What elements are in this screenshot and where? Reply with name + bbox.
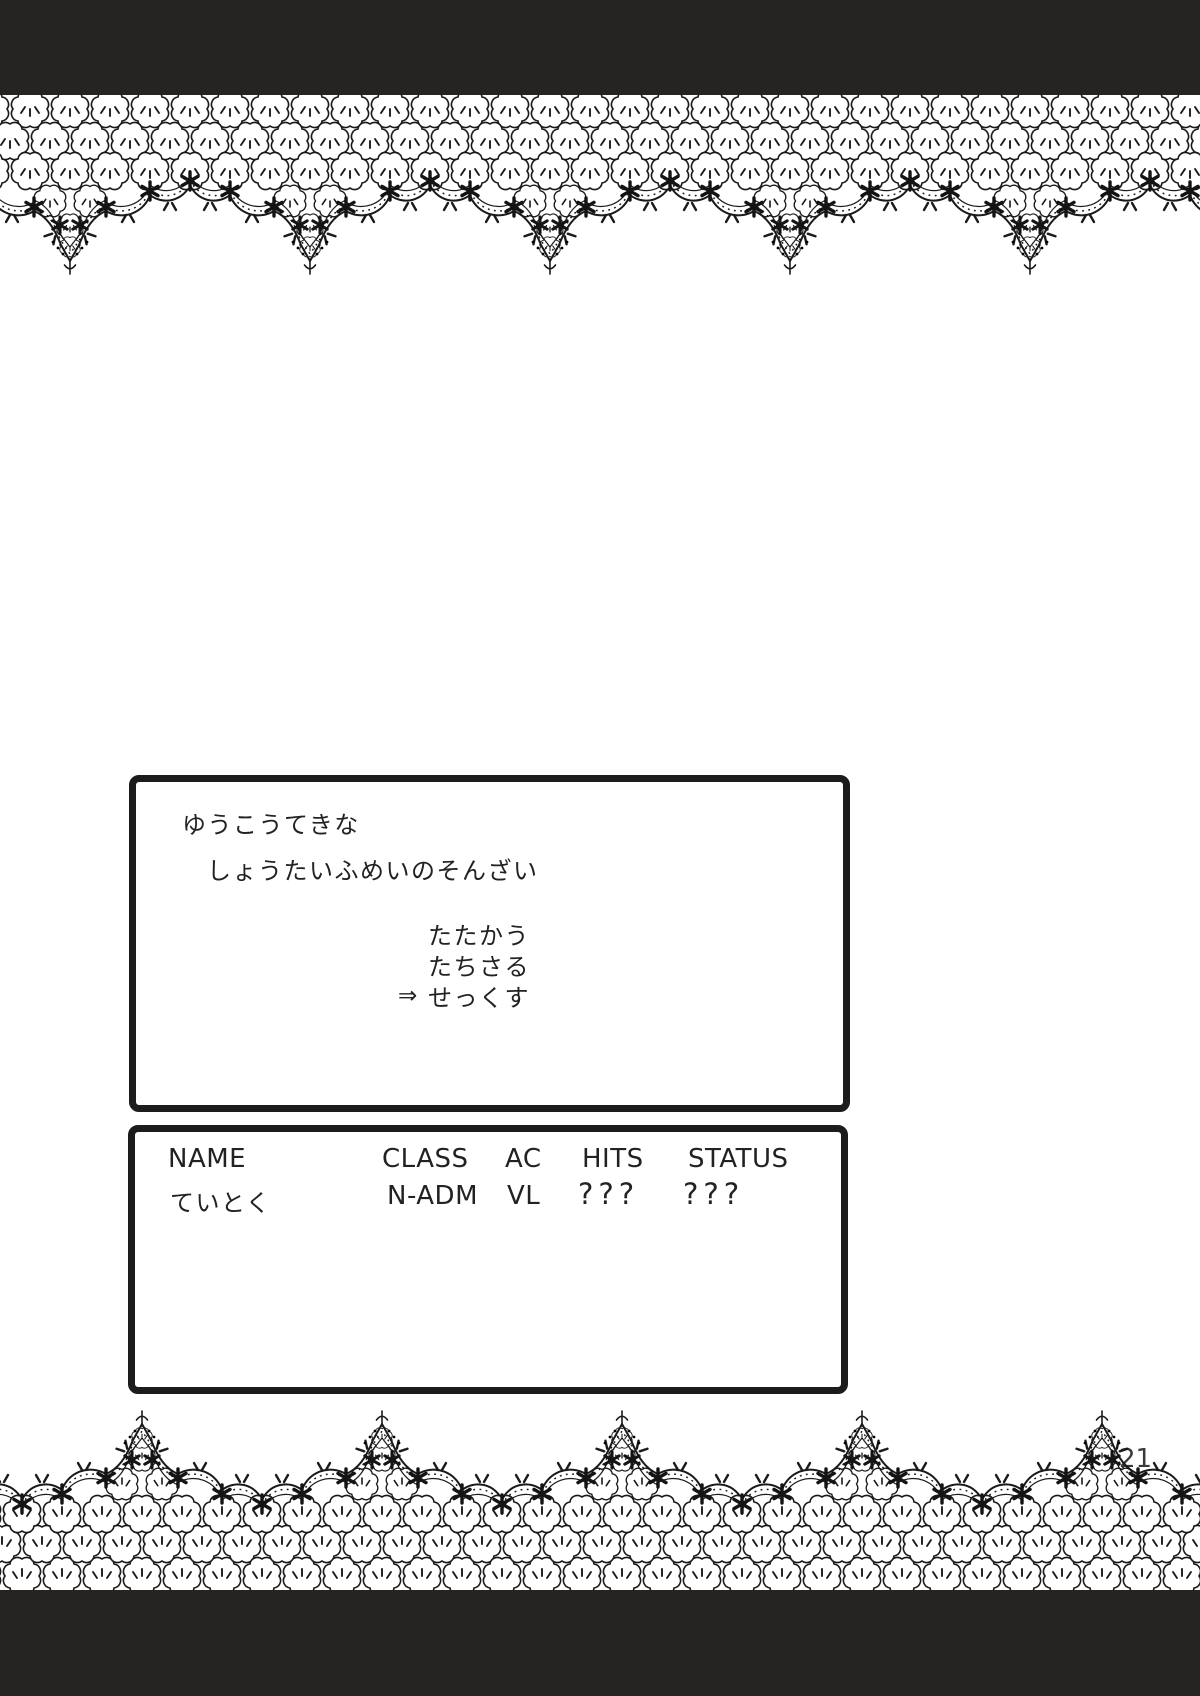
status-cell-name: ていとく	[170, 1183, 271, 1218]
status-header-class: CLASS	[382, 1144, 469, 1174]
doujin-page: ゆうこうてきな しょうたいふめいのそんざい たたかう たちさる ⇒ せっくす N…	[0, 0, 1200, 1696]
status-window: NAME CLASS AC HITS STATUS ていとく N-ADM VL …	[128, 1125, 848, 1394]
menu-item-leave[interactable]: たちさる	[398, 949, 530, 980]
enemy-name-text: しょうたいふめいのそんざい	[207, 851, 539, 886]
page-number: 21	[1119, 1444, 1152, 1474]
bottom-black-bar	[0, 1590, 1200, 1696]
status-header-ac: AC	[505, 1144, 541, 1174]
battle-dialog-window: ゆうこうてきな しょうたいふめいのそんざい たたかう たちさる ⇒ せっくす	[129, 775, 850, 1112]
status-header-hits: HITS	[582, 1144, 644, 1174]
enemy-approach-text: ゆうこうてきな	[182, 805, 360, 840]
menu-item-label: たたかう	[428, 916, 530, 951]
status-header-status: STATUS	[688, 1144, 789, 1174]
status-cell-class: N-ADM	[387, 1181, 478, 1211]
battle-command-menu: たたかう たちさる ⇒ せっくす	[398, 918, 530, 1011]
bottom-lace-border	[0, 1408, 1200, 1590]
menu-item-label: せっくす	[428, 978, 530, 1013]
selection-cursor-icon: ⇒	[398, 983, 428, 1009]
menu-item-label: たちさる	[428, 947, 530, 982]
top-lace-border	[0, 95, 1200, 277]
menu-item-sex[interactable]: ⇒ せっくす	[398, 980, 530, 1011]
status-cell-ac: VL	[507, 1181, 540, 1211]
status-header-name: NAME	[168, 1144, 246, 1174]
menu-item-fight[interactable]: たたかう	[398, 918, 530, 949]
status-cell-hits: ???	[578, 1177, 639, 1211]
status-cell-status: ???	[683, 1177, 744, 1211]
top-black-bar	[0, 0, 1200, 95]
